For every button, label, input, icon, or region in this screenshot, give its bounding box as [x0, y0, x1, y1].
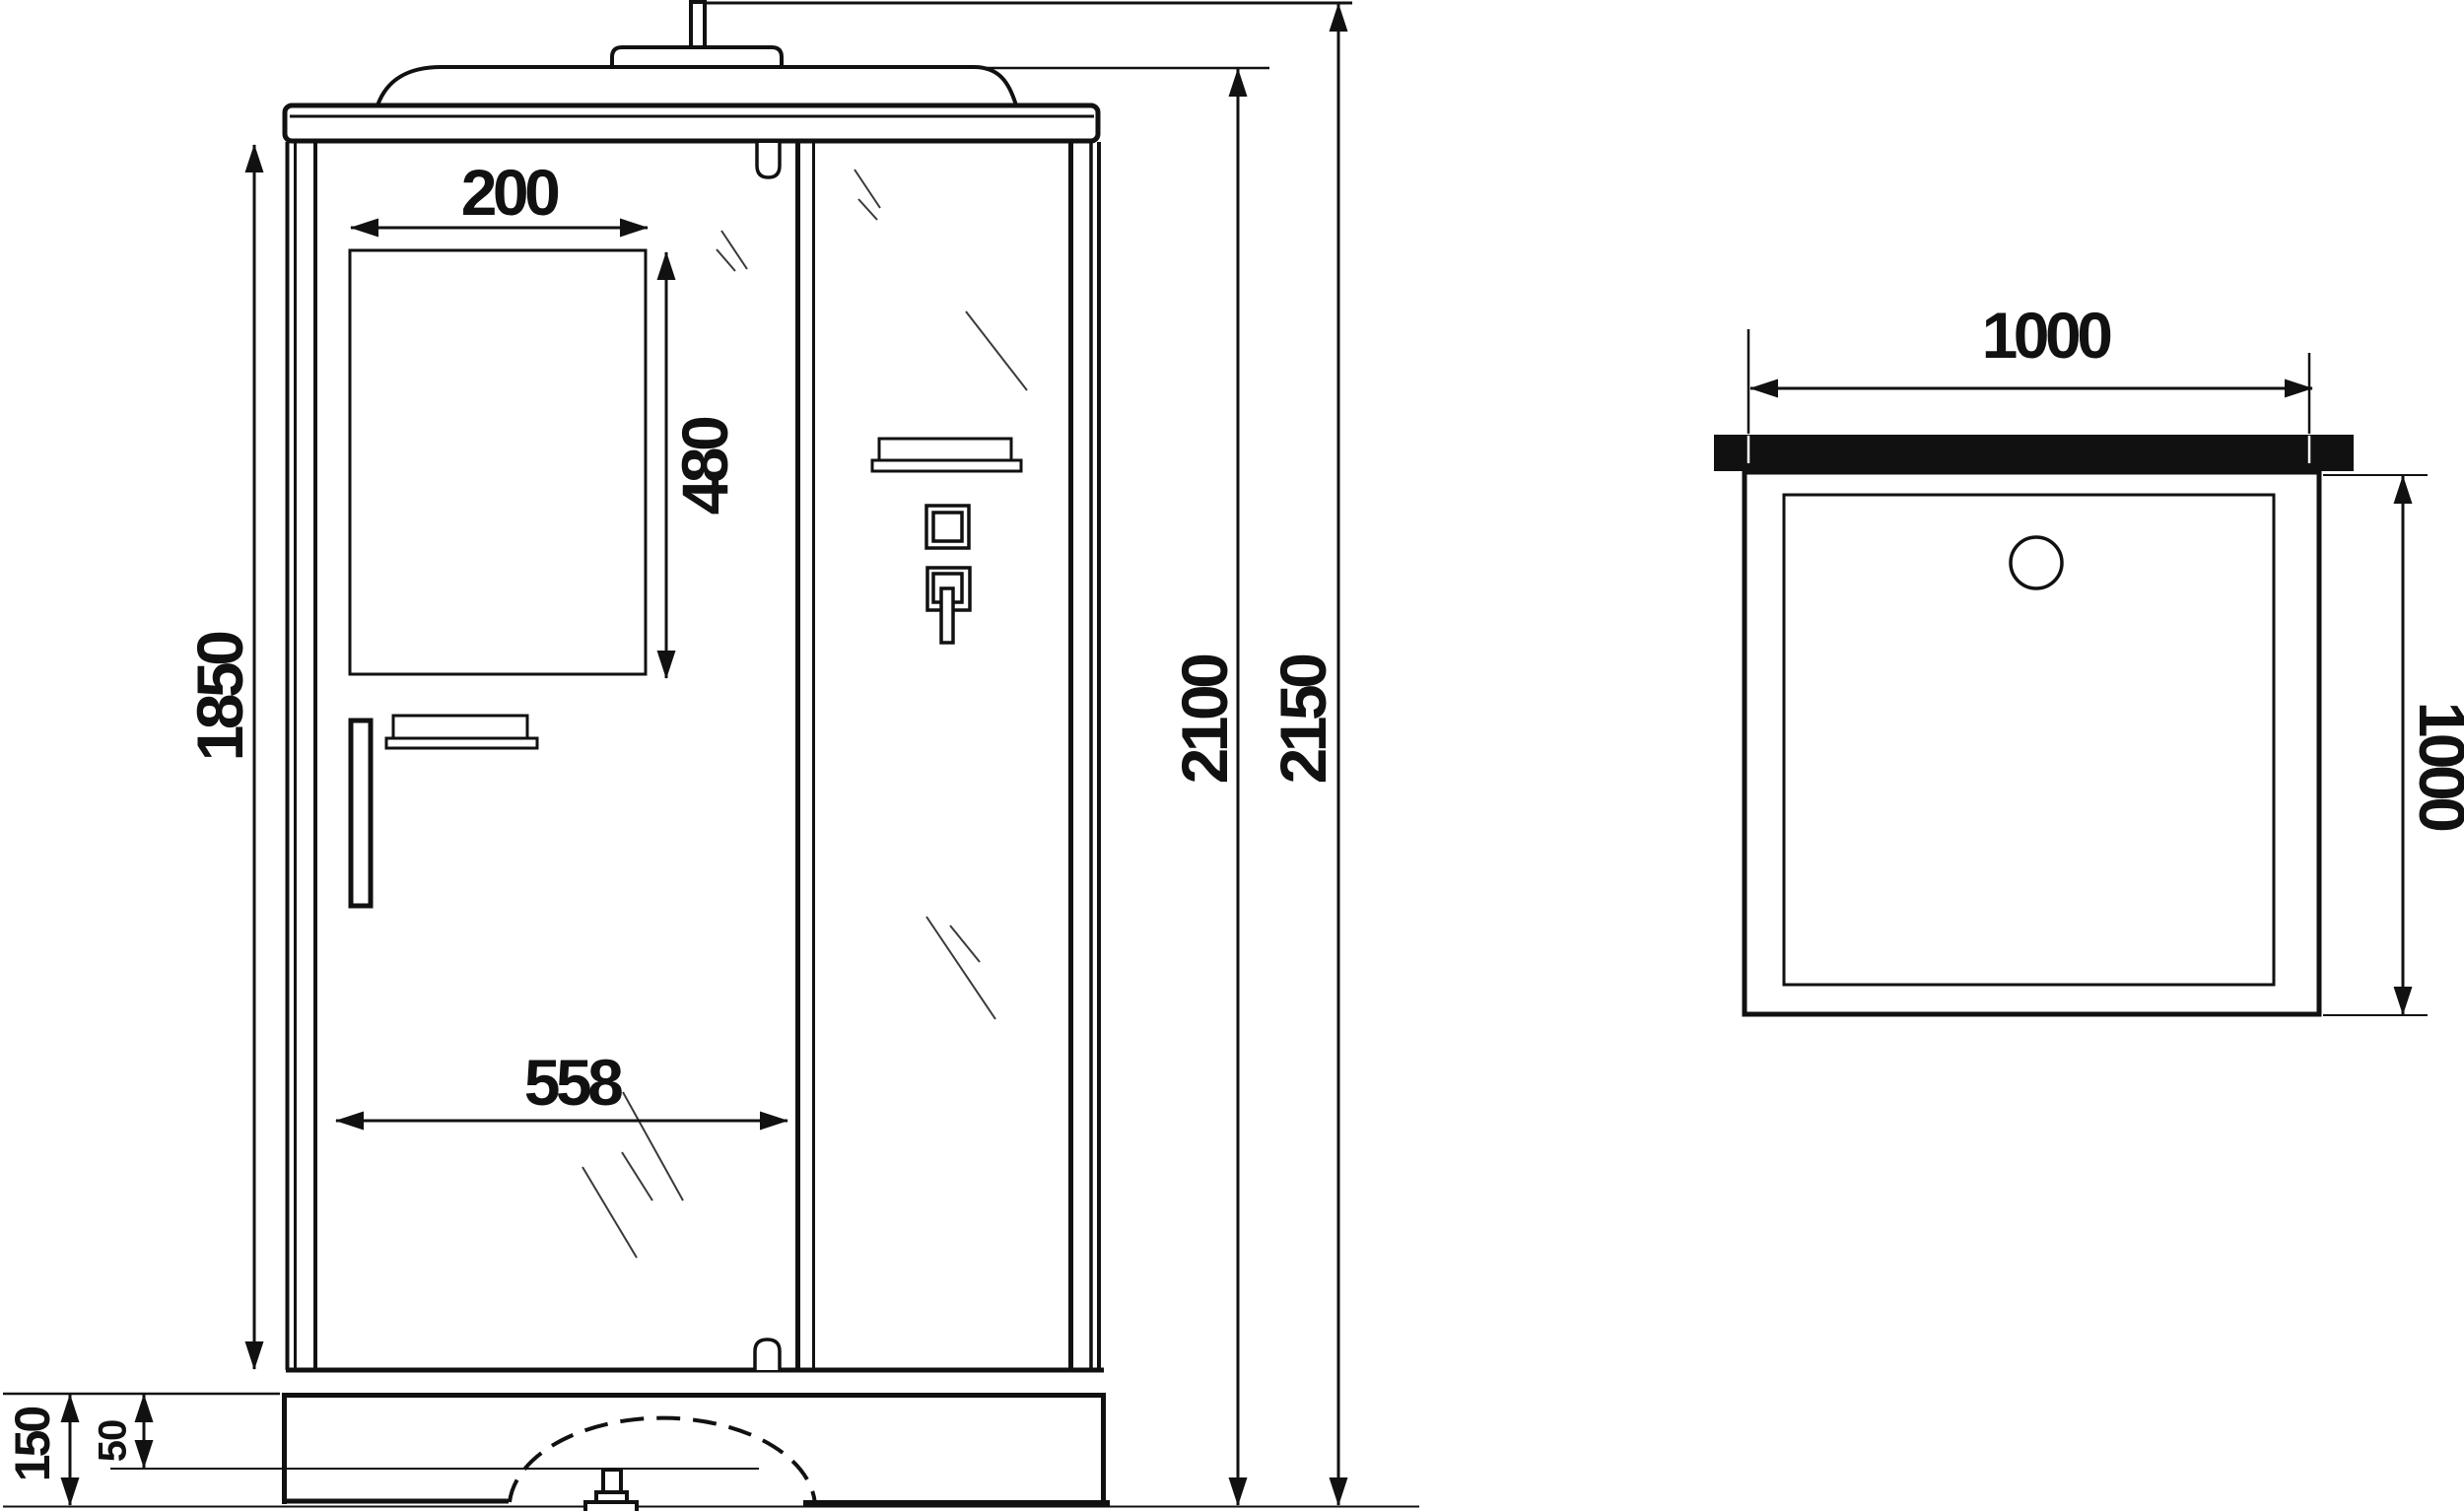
svg-text:558: 558: [524, 1046, 622, 1119]
svg-text:2150: 2150: [1266, 655, 1339, 785]
svg-text:1850: 1850: [183, 633, 256, 762]
svg-text:2100: 2100: [1168, 655, 1241, 785]
svg-text:480: 480: [668, 418, 741, 515]
svg-text:1000: 1000: [1982, 299, 2111, 372]
svg-text:150: 150: [5, 1408, 60, 1482]
svg-text:50: 50: [91, 1420, 134, 1463]
svg-text:1000: 1000: [2406, 702, 2464, 831]
svg-text:200: 200: [461, 156, 558, 229]
